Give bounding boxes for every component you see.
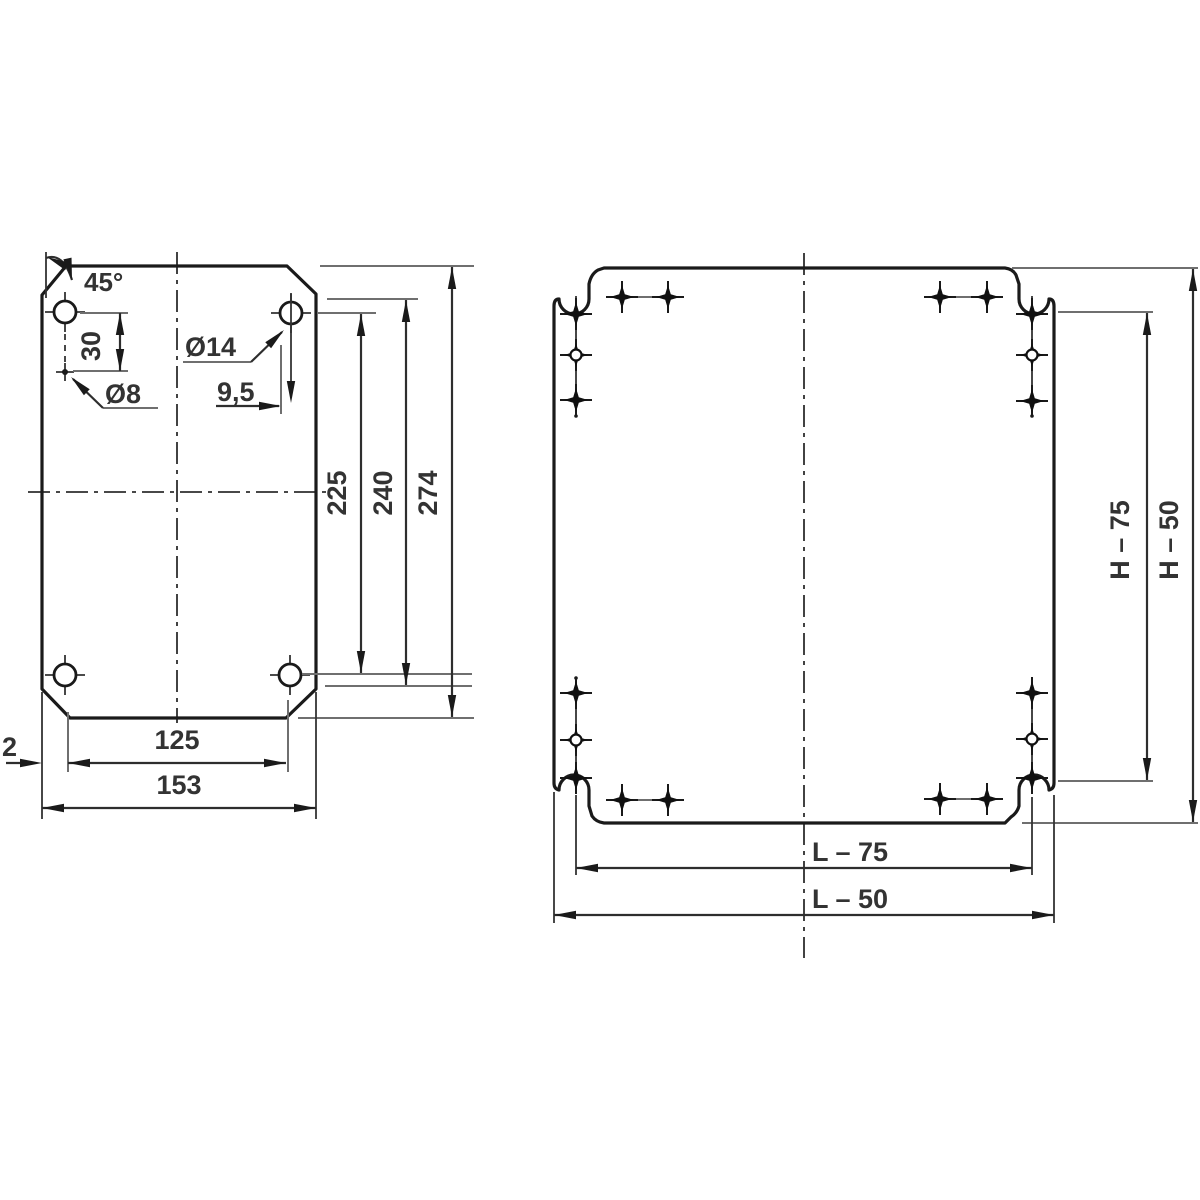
dia14-label: Ø14 <box>185 332 236 362</box>
dim-l75-label: L – 75 <box>812 837 888 867</box>
dim-h50-label: H – 50 <box>1154 500 1184 580</box>
dim-l50-label: L – 50 <box>812 884 888 914</box>
dim-225-label: 225 <box>322 470 352 515</box>
dim-30-label: 30 <box>76 331 106 361</box>
angle-label: 45° <box>84 267 123 297</box>
dim-125-label: 125 <box>154 725 199 755</box>
dim-9-5-label: 9,5 <box>217 377 255 407</box>
dim-h75-label: H – 75 <box>1105 500 1135 580</box>
technical-drawing-page: 45° 30 Ø14 Ø8 9,5 <box>0 0 1200 1200</box>
dim-274-label: 274 <box>413 470 443 515</box>
dim-153-label: 153 <box>156 770 201 800</box>
dim-240-label: 240 <box>368 470 398 515</box>
mounting-plate-drawing: 45° 30 Ø14 Ø8 9,5 <box>0 0 1200 1200</box>
drawing-background <box>0 0 1200 1200</box>
dia8-label: Ø8 <box>105 379 141 409</box>
dim-2-label: 2 <box>2 732 17 762</box>
